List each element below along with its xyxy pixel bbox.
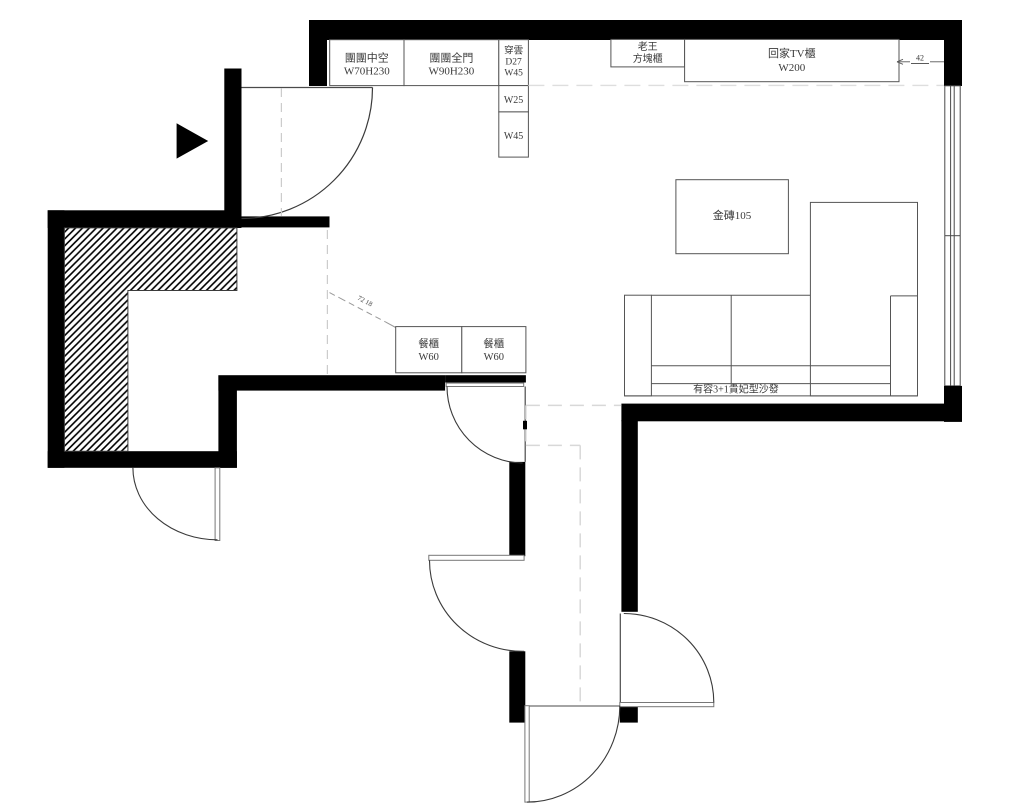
- svg-text:W45: W45: [504, 131, 523, 142]
- svg-text:穿雲: 穿雲: [504, 45, 523, 57]
- svg-text:D27: D27: [505, 58, 522, 68]
- svg-text:W45: W45: [504, 69, 523, 79]
- svg-text:W70H230: W70H230: [344, 66, 390, 78]
- svg-text:老王: 老王: [638, 40, 658, 53]
- svg-text:金磚105: 金磚105: [713, 208, 752, 222]
- svg-text:團團全門: 團團全門: [429, 51, 473, 65]
- svg-text:餐櫃: 餐櫃: [418, 337, 439, 350]
- svg-text:W25: W25: [504, 95, 523, 106]
- svg-text:回家TV櫃: 回家TV櫃: [768, 46, 816, 60]
- svg-text:W90H230: W90H230: [428, 66, 474, 78]
- svg-text:有容3+1貴妃型沙發: 有容3+1貴妃型沙發: [693, 383, 779, 396]
- svg-text:餐櫃: 餐櫃: [483, 337, 504, 350]
- svg-text:方塊櫃: 方塊櫃: [633, 52, 663, 65]
- svg-text:團團中空: 團團中空: [345, 51, 389, 65]
- svg-text:72 18: 72 18: [356, 294, 374, 309]
- svg-text:W60: W60: [484, 352, 504, 363]
- svg-text:W200: W200: [778, 62, 805, 74]
- svg-text:42: 42: [916, 54, 924, 63]
- svg-text:W60: W60: [418, 352, 438, 363]
